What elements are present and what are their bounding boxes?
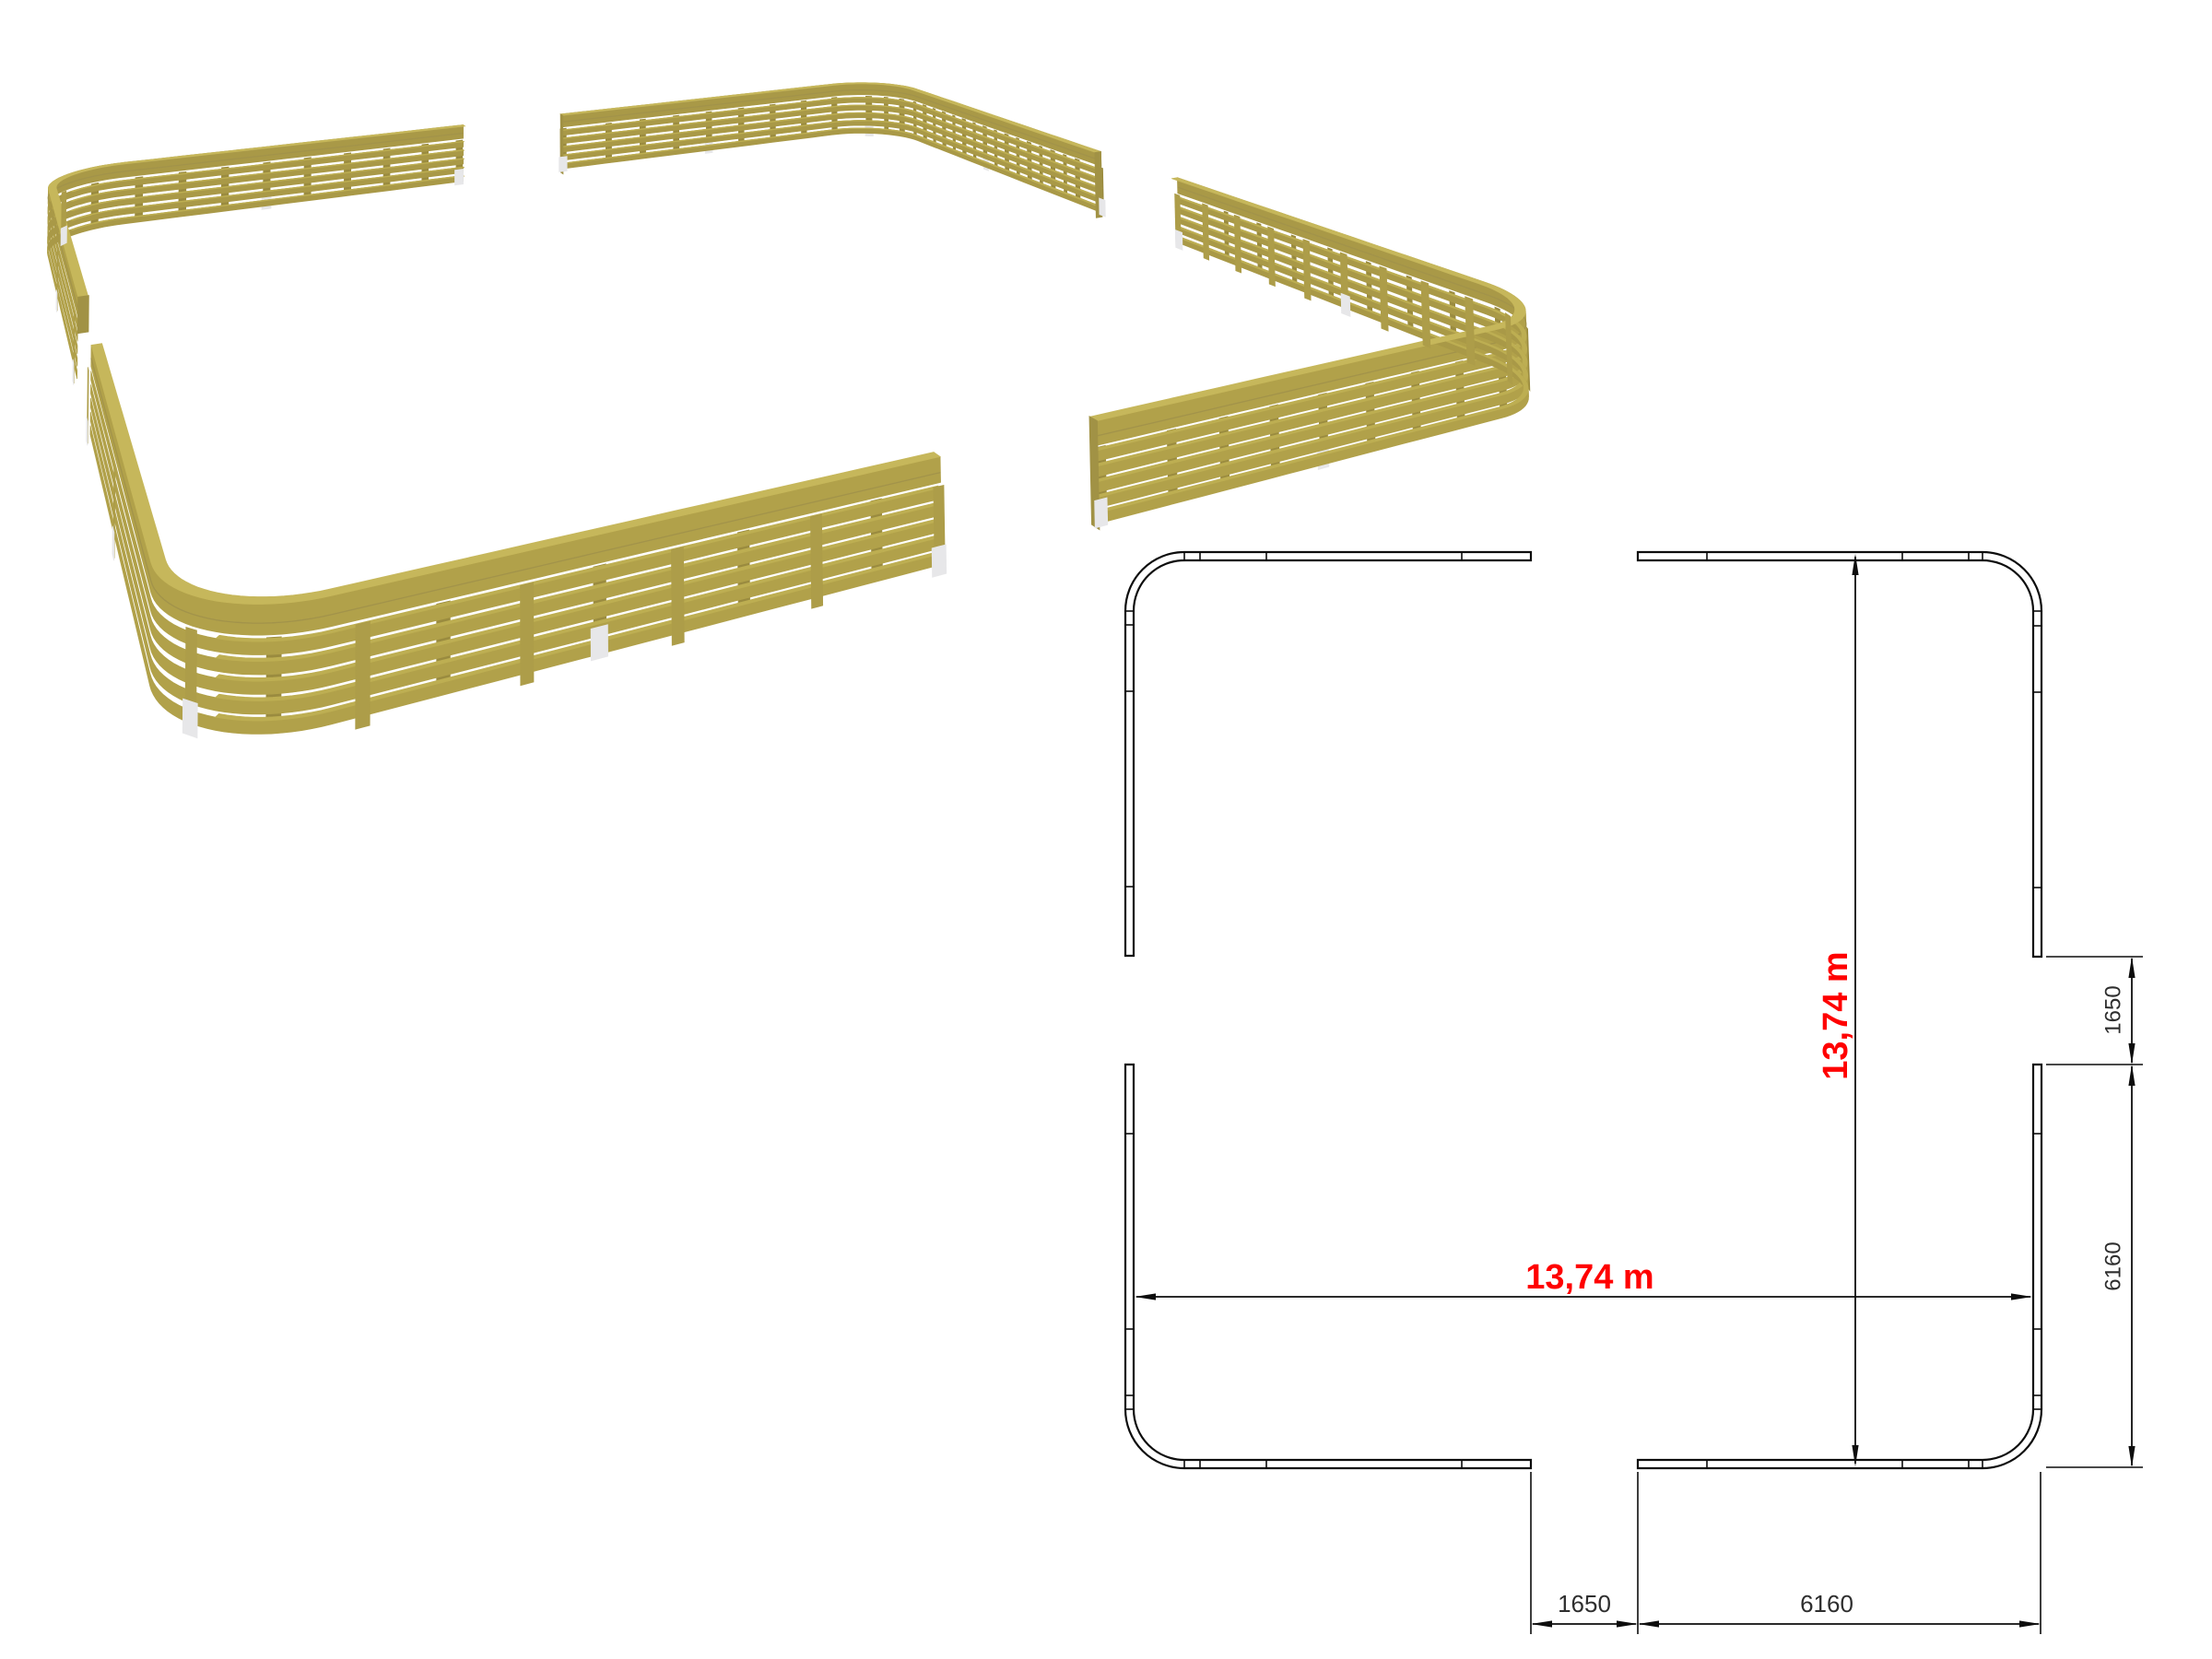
svg-text:1650: 1650 [1558,1590,1611,1618]
svg-text:6160: 6160 [1800,1590,1853,1618]
svg-text:13,74 m: 13,74 m [1817,951,1855,1079]
svg-text:6160: 6160 [2100,1241,2125,1290]
svg-text:13,74 m: 13,74 m [1525,1258,1653,1297]
svg-text:1650: 1650 [2100,985,2125,1034]
